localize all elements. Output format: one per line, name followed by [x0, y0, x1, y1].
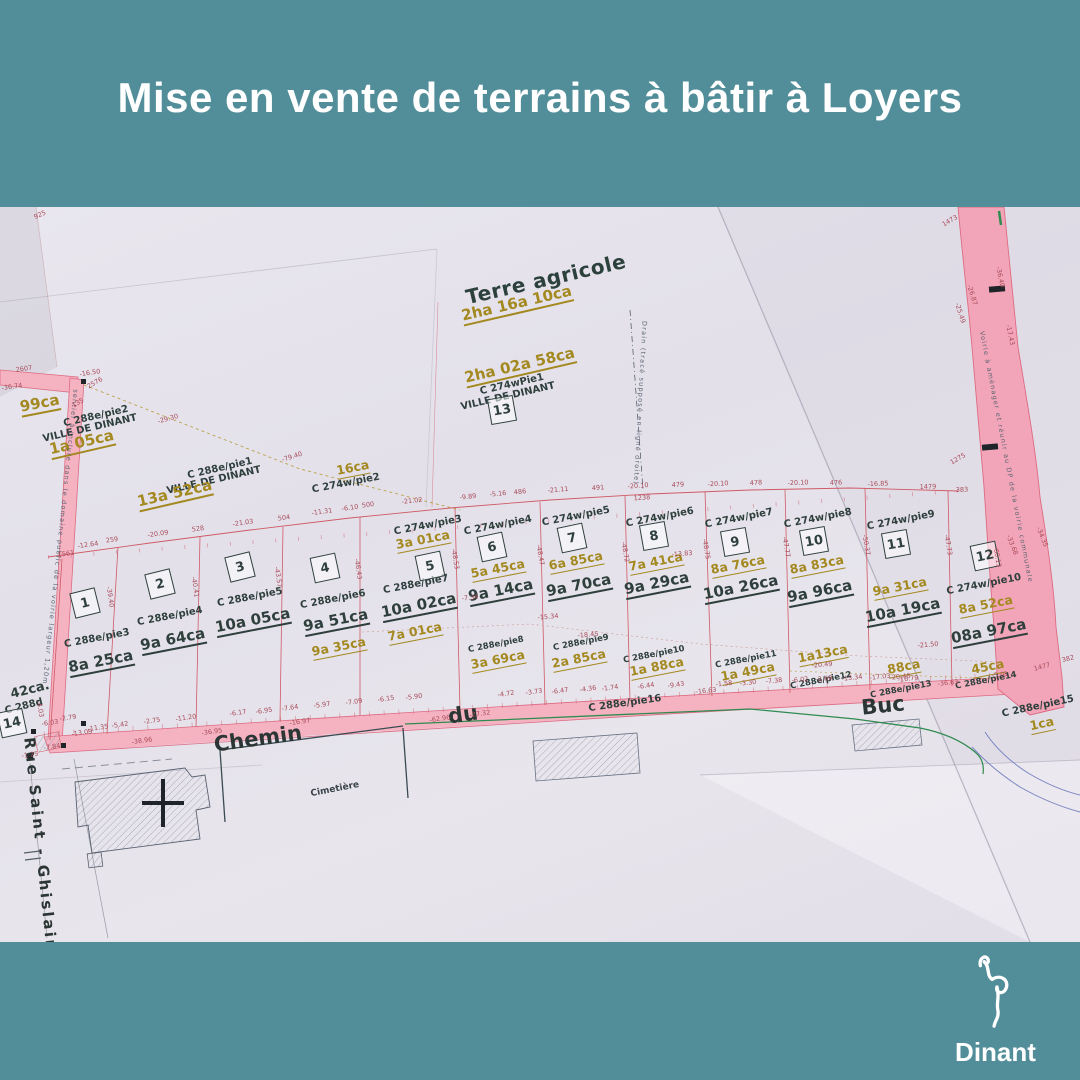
measurement-label: 382 — [1061, 654, 1075, 663]
measurement-label: -4.03 — [35, 700, 44, 718]
plot-number: 2 — [144, 568, 176, 600]
measurement-label: -79.40 — [281, 451, 303, 464]
plot-number: 3 — [224, 551, 256, 583]
map-label: Drain (tracé supposé en ligne droite) — [632, 321, 647, 485]
measurement-label: -16.63 — [695, 687, 717, 696]
measurement-label: -48.75 — [701, 538, 711, 560]
map-label: 9a 51ca — [302, 607, 370, 637]
measurement-label: 491 — [592, 484, 605, 492]
measurement-label: 2607 — [15, 365, 32, 374]
plot-number: 4 — [310, 553, 341, 584]
plot-number: 11 — [881, 529, 911, 559]
measurement-label: 479 — [672, 481, 685, 488]
measurement-label: 500 — [361, 501, 374, 509]
measurement-label: -7.38 — [765, 677, 782, 685]
measurement-label: -11.35 — [87, 723, 109, 732]
measurement-label: -20.10 — [627, 482, 648, 490]
measurement-label: -20.49 — [811, 661, 832, 669]
measurement-label: -26.87 — [966, 284, 979, 306]
measurement-label: -12.64 — [77, 540, 99, 549]
measurement-label: -7.64 — [281, 704, 299, 713]
measurement-label: -13.34 — [841, 674, 863, 683]
measurement-label: -38.96 — [131, 736, 153, 745]
map-label: 1ca — [1028, 715, 1055, 734]
measurement-label: -15.34 — [537, 613, 558, 621]
measurement-label: -7.84 — [43, 743, 61, 752]
map-label: C 288e/pie16 — [588, 694, 662, 714]
measurement-label: -1.74 — [601, 684, 619, 693]
measurement-label: -20.09 — [147, 529, 169, 538]
measurement-label: -6.10 — [341, 504, 359, 513]
measurement-label: -40.41 — [190, 576, 199, 598]
measurement-label: 383 — [956, 487, 969, 494]
plot-number: 13 — [487, 395, 517, 425]
measurement-label: 476 — [830, 480, 843, 487]
measurement-label: -16.97 — [289, 717, 311, 726]
map-label: 9a 96ca — [786, 578, 854, 608]
plot-number: 8 — [639, 521, 669, 551]
plot-number: 7 — [557, 523, 588, 554]
measurement-label: -20.10 — [707, 480, 728, 488]
measurement-label: -39.40 — [105, 586, 114, 608]
measurement-label: -4.72 — [497, 690, 515, 699]
measurement-label: -21.03 — [232, 518, 254, 527]
measurement-label: -27.32 — [469, 709, 491, 718]
measurement-label: 1275 — [949, 452, 967, 466]
measurement-label: -50.37 — [861, 534, 871, 556]
measurement-label: -17.03 — [869, 673, 891, 682]
measurement-label: -7.34 — [461, 594, 478, 602]
measurement-label: -11.20 — [175, 713, 197, 722]
map-label: 9a 35ca — [311, 636, 367, 661]
measurement-label: -48.53 — [450, 548, 460, 570]
measurement-label: 2576 — [86, 376, 104, 390]
map-label: Chemin — [213, 722, 304, 755]
measurement-label: -5.42 — [111, 721, 129, 730]
measurement-label: 478 — [750, 479, 763, 486]
measurement-label: -29.30 — [157, 413, 179, 425]
plot-number: 6 — [477, 532, 508, 563]
measurement-label: -9.89 — [459, 493, 476, 501]
measurement-label: -48.72 — [620, 541, 630, 563]
measurement-label: 1238 — [634, 494, 651, 502]
measurement-label: -6.17 — [229, 709, 247, 718]
measurement-label: -1.58 — [715, 680, 732, 688]
measurement-label: -4.36 — [579, 685, 597, 694]
dinant-logo-text: Dinant — [938, 1037, 1053, 1068]
measurement-label: -21.11 — [547, 486, 568, 494]
measurement-label: -3.73 — [525, 688, 543, 697]
measurement-label: -36.40 — [995, 266, 1006, 288]
measurement-label: -6.02 — [791, 676, 808, 684]
measurement-label: -2.79 — [59, 714, 77, 723]
map-label: Buc — [860, 693, 905, 718]
measurement-label: -20.10 — [787, 479, 808, 486]
dinant-logo: Dinant — [938, 952, 1053, 1068]
plot-number: 1 — [69, 587, 101, 619]
map-label: 10a 02ca — [380, 591, 458, 623]
map-label: 6a 85ca — [548, 550, 604, 575]
measurement-label: -18.45 — [577, 631, 598, 639]
measurement-label: -46.43 — [353, 558, 362, 580]
measurement-label: -3.30 — [739, 679, 756, 687]
measurement-label: -5.01 — [991, 671, 1008, 679]
measurement-label: -6.15 — [377, 695, 395, 704]
dinant-logo-icon — [965, 952, 1027, 1030]
measurement-label: 1477 — [1033, 662, 1051, 673]
social-post: Mise en vente de terrains à bâtir à Loye… — [0, 0, 1080, 1080]
map-label: 10a 19ca — [864, 596, 942, 628]
measurement-label: -36.74 — [1, 382, 23, 391]
plot-number: 5 — [415, 551, 446, 582]
measurement-label: -2.69 — [815, 675, 832, 683]
measurement-label: -5.97 — [313, 701, 331, 710]
map-label: Cimetière — [310, 781, 360, 799]
map-label: 42ca. — [9, 679, 50, 701]
map-label: 8a 52ca — [958, 594, 1014, 619]
measurement-label: -11.31 — [311, 507, 333, 516]
measurement-label: -5.90 — [405, 693, 423, 702]
measurement-label: 486 — [513, 488, 526, 496]
map-label: 7a 01ca — [387, 621, 443, 646]
measurement-label: -17.43 — [1005, 324, 1016, 346]
map-label: 8a 25ca — [67, 648, 135, 678]
measurement-label: -6.95 — [255, 707, 273, 716]
measurement-label: -6.03 — [41, 719, 59, 728]
measurement-label: 259 — [105, 536, 118, 544]
map-label: Rue Saint - Ghislain — [21, 737, 59, 942]
measurement-label: -7.09 — [345, 698, 363, 707]
measurement-label: -34.35 — [1035, 526, 1049, 548]
map-label: 9a 70ca — [545, 572, 613, 602]
map-label: 9a 64ca — [139, 626, 207, 656]
measurement-label: -6.44 — [637, 682, 655, 691]
measurement-label: -21.50 — [917, 641, 938, 649]
plot-number: 10 — [799, 526, 829, 556]
measurement-label: -47.77 — [781, 536, 791, 558]
measurement-label: -48.47 — [535, 544, 545, 566]
measurement-label: 528 — [191, 525, 204, 533]
plan-photo: Terre agricole2ha 16a 10ca2ha 02a 58caC … — [0, 207, 1080, 942]
measurement-label: -2.75 — [143, 717, 161, 726]
measurement-label: 504 — [277, 514, 290, 522]
measurement-label: -13.83 — [671, 550, 692, 558]
measurement-label: -43.57 — [273, 566, 282, 588]
measurement-label: 1473 — [941, 214, 959, 228]
page-title: Mise en vente de terrains à bâtir à Loye… — [0, 74, 1080, 122]
measurement-label: -21.02 — [401, 497, 423, 506]
measurement-label: -62.96 — [429, 714, 451, 723]
measurement-label: -25.49 — [954, 302, 967, 324]
map-label: 13a 52ca — [136, 478, 214, 513]
measurement-label: -47.73 — [943, 534, 953, 556]
map-label: 99ca — [19, 392, 62, 417]
measurement-label: -6.47 — [551, 687, 569, 696]
plot-number: 9 — [720, 527, 750, 557]
map-label: 08a 97ca — [950, 617, 1028, 649]
measurement-label: 1479 — [920, 483, 937, 490]
measurement-label: 1561 — [57, 550, 74, 559]
map-label: 8a 83ca — [789, 554, 845, 579]
measurement-label: -5.16 — [489, 490, 506, 498]
measurement-label: -9.43 — [667, 681, 685, 690]
map-label: 10a 05ca — [214, 606, 292, 638]
measurement-label: -16.85 — [867, 480, 888, 487]
plan-labels: Terre agricole2ha 16a 10ca2ha 02a 58caC … — [0, 207, 1080, 942]
measurement-label: 925 — [33, 209, 47, 220]
